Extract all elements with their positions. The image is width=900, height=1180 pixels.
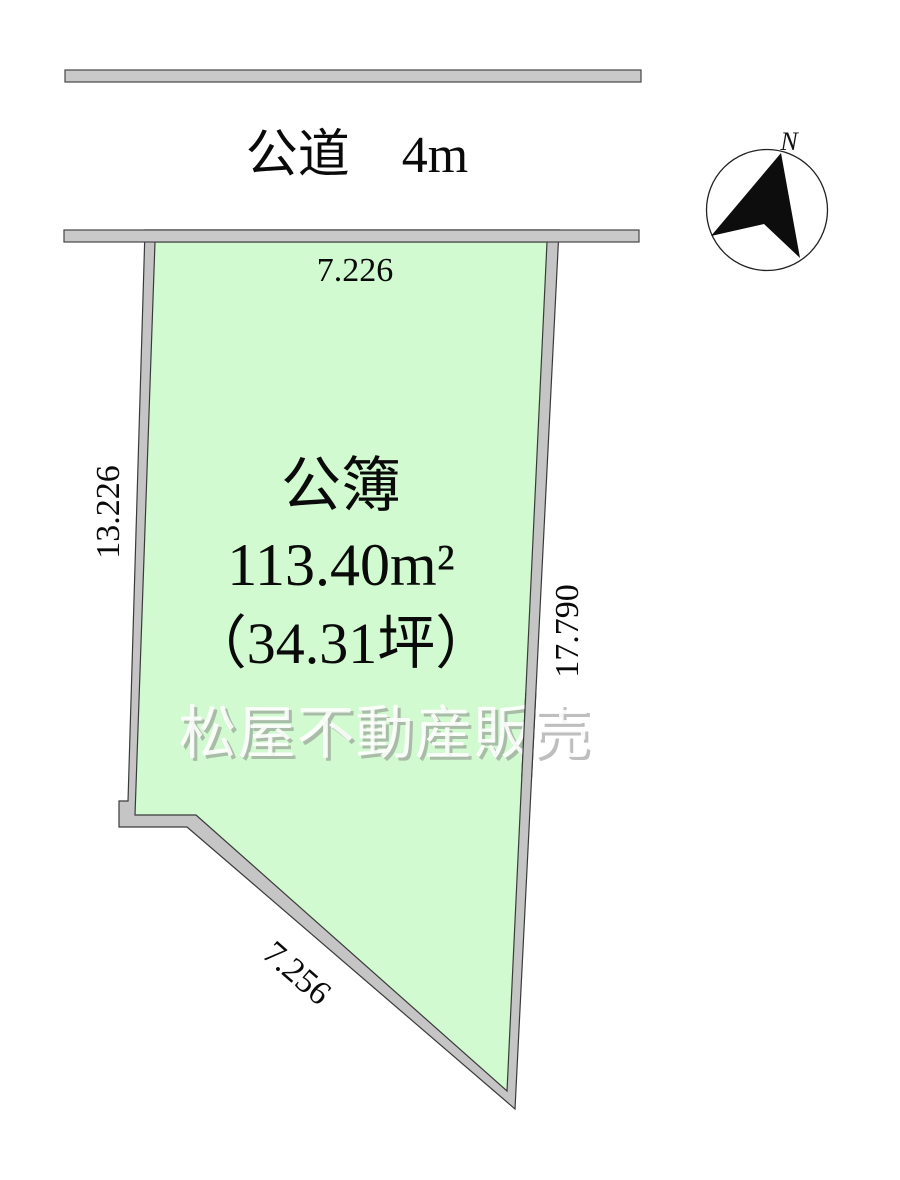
dimension-right: 17.790 <box>549 584 586 678</box>
parcel-area-tsubo: （34.31坪） <box>189 611 494 676</box>
road-lower-edge <box>64 230 639 242</box>
parcel-register-label: 公簿 <box>281 453 401 519</box>
dimension-left: 13.226 <box>90 465 127 559</box>
land-plot-diagram-page: 公道 4m 7.226 13.226 17.790 7.256 公簿 113.4… <box>0 0 900 1180</box>
land-plot-diagram: 公道 4m 7.226 13.226 17.790 7.256 公簿 113.4… <box>0 0 900 1180</box>
dimension-top: 7.226 <box>317 252 394 289</box>
north-label: N <box>779 127 799 156</box>
parcel-area-sqm: 113.40m² <box>227 532 454 598</box>
road-upper-edge <box>65 70 641 82</box>
road-label: 公道 4m <box>246 127 468 184</box>
